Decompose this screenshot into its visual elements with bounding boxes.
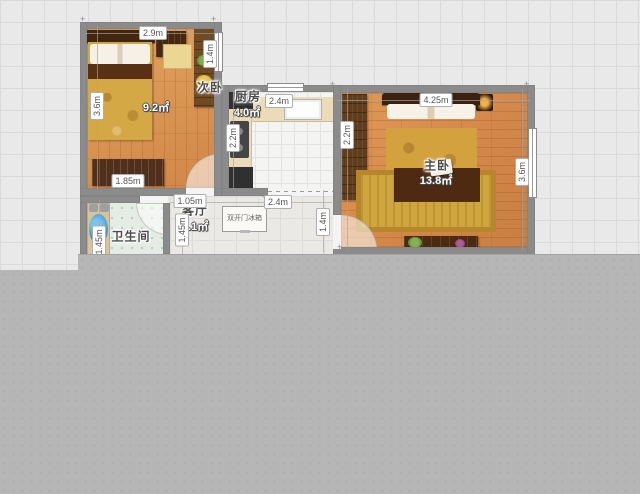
fridge-handle-icon — [240, 230, 250, 233]
wall[interactable] — [214, 188, 222, 196]
area-label-master-bedroom: 13.8㎡ — [420, 172, 452, 188]
corner-marker — [80, 15, 85, 24]
dim-sb-top[interactable]: 2.9m — [139, 26, 167, 40]
dim-mb-right[interactable]: 3.6m — [515, 158, 529, 186]
measure-line — [347, 89, 348, 249]
area-label-kitchen: 4.0㎡ — [234, 104, 260, 120]
dim-sb-dresser[interactable]: 1.85m — [111, 174, 144, 188]
wall[interactable] — [80, 188, 186, 196]
dim-mb-top[interactable]: 4.25m — [419, 93, 452, 107]
bathroom-fixture-icon[interactable] — [100, 204, 109, 212]
dim-corridor[interactable]: 1.05m — [173, 194, 206, 208]
secondary-bed-pillows — [90, 44, 150, 64]
dim-kitchen-left[interactable]: 2.2m — [226, 124, 240, 152]
dim-mb-left[interactable]: 2.2m — [340, 121, 354, 149]
dim-living-kitchen[interactable]: 2.4m — [264, 195, 292, 209]
wall[interactable] — [80, 196, 140, 203]
slab-area — [0, 270, 640, 494]
wall[interactable] — [163, 203, 170, 254]
door-opening-bathroom[interactable] — [140, 196, 168, 203]
dim-sb-left[interactable]: 3.6m — [90, 92, 104, 120]
corner-marker — [524, 80, 529, 89]
wall[interactable] — [333, 85, 341, 215]
room-label-secondary-bedroom: 次卧 — [197, 79, 223, 96]
room-label-kitchen: 厨房 — [235, 88, 261, 105]
corner-marker — [80, 184, 85, 193]
bathroom-fixture-icon[interactable] — [89, 204, 98, 212]
wall[interactable] — [333, 85, 535, 93]
room-label-bathroom: 卫生间 — [111, 228, 150, 245]
corner-marker — [337, 243, 342, 252]
window-master-bedroom[interactable] — [528, 128, 537, 198]
floorplan-canvas: 双开门冰箱 2.9m 1.4m 3.6m 1. — [0, 0, 640, 494]
corner-marker — [211, 15, 216, 24]
dim-bath-right[interactable]: 1.45m — [175, 213, 189, 246]
dim-kitchen-top[interactable]: 2.4m — [265, 94, 293, 108]
corner-marker — [330, 80, 335, 89]
room-label-master-bedroom: 主卧 — [424, 157, 450, 174]
secondary-yellow-mat[interactable] — [163, 44, 192, 69]
wall[interactable] — [80, 22, 87, 196]
dim-living-master[interactable]: 1.4m — [316, 208, 330, 236]
area-label-secondary-bedroom: 9.2㎡ — [143, 99, 169, 115]
wall[interactable] — [80, 196, 87, 254]
fridge-box[interactable]: 双开门冰箱 — [222, 206, 267, 232]
fridge-label: 双开门冰箱 — [227, 215, 262, 223]
dim-sb-window[interactable]: 1.4m — [203, 40, 217, 68]
window-kitchen[interactable] — [267, 83, 304, 92]
